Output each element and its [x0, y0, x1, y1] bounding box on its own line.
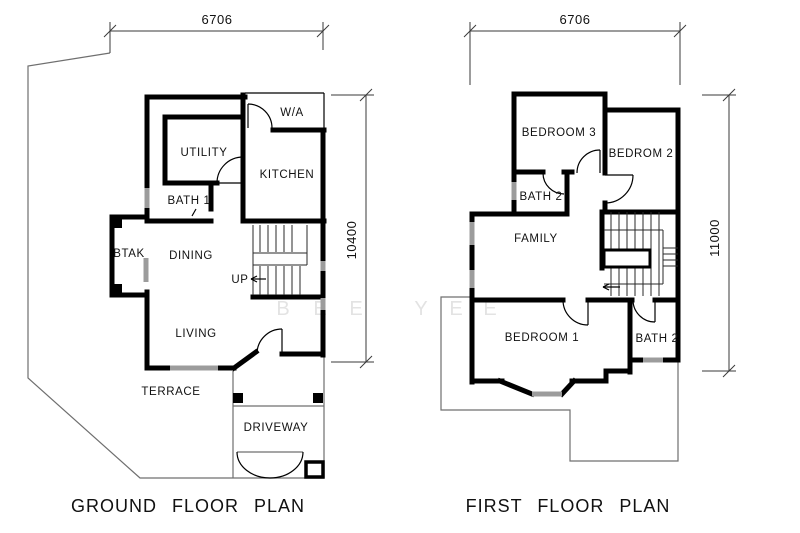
- first-height-dimension: 11000: [707, 219, 722, 257]
- first-width-dimension: 6706: [560, 12, 591, 27]
- gate-post: [306, 462, 323, 477]
- room-label-bath1: BATH 1: [167, 195, 210, 207]
- floor-plan-sheet: B E E Y E E 6706 10400: [0, 0, 800, 533]
- watermark-letter: E: [449, 298, 462, 320]
- room-label-bedroom3: BEDROOM 3: [522, 127, 596, 139]
- stair-landing: [604, 250, 650, 267]
- entry-door-arc: [257, 329, 282, 354]
- bedroom1-door-arc: [563, 300, 588, 325]
- room-label-bedroom1: BEDROOM 1: [505, 332, 579, 344]
- wa-door-arc: [248, 104, 272, 128]
- floor-plan-drawing: B E E Y E E 6706 10400: [0, 0, 800, 533]
- room-label-bath2-lower: BATH 2: [635, 333, 678, 345]
- ground-floor-plan: 6706 10400: [28, 12, 374, 516]
- room-label-driveway: DRIVEWAY: [244, 422, 309, 434]
- ground-height-dimension: 10400: [344, 221, 359, 260]
- room-label-dining: DINING: [169, 250, 213, 262]
- room-label-kitchen: KITCHEN: [260, 169, 315, 181]
- first-stairs: [603, 212, 678, 296]
- first-room-labels: BEDROOM 3 BEDROM 2 BATH 2 FAMILY BEDROOM…: [505, 127, 679, 345]
- gate-left-arc: [237, 452, 270, 478]
- room-label-bath2-upper: BATH 2: [519, 191, 562, 203]
- bath2-lower-door-arc: [633, 300, 655, 322]
- bedroom2-door-arc: [605, 175, 633, 203]
- room-label-utility: UTILITY: [180, 147, 227, 159]
- room-label-living: LIVING: [175, 328, 216, 340]
- first-dimensions: 6706 11000: [464, 12, 736, 377]
- room-label-bedroom2: BEDROM 2: [609, 148, 674, 160]
- bedroom3-door-arc: [577, 150, 600, 173]
- utility-door-arc: [217, 157, 243, 183]
- watermark-letter: B: [276, 298, 289, 320]
- ground-floor-title: GROUND FLOOR PLAN: [71, 496, 305, 516]
- first-floor-title: FIRST FLOOR PLAN: [466, 496, 671, 516]
- room-label-up: UP: [231, 274, 248, 286]
- first-floor-plan: 6706 11000: [441, 12, 736, 516]
- room-label-wa: W/A: [280, 107, 304, 119]
- room-label-terrace: TERRACE: [141, 386, 200, 398]
- ground-width-dimension: 6706: [202, 12, 233, 27]
- gate-right-arc: [270, 452, 303, 478]
- watermark: B E E Y E E: [276, 298, 496, 320]
- ground-stairs: [251, 225, 307, 295]
- first-walls: [472, 94, 678, 394]
- room-label-family: FAMILY: [514, 233, 558, 245]
- watermark-letter: Y: [414, 298, 427, 320]
- room-label-btak: BTAK: [113, 248, 145, 260]
- watermark-letter: E: [349, 298, 362, 320]
